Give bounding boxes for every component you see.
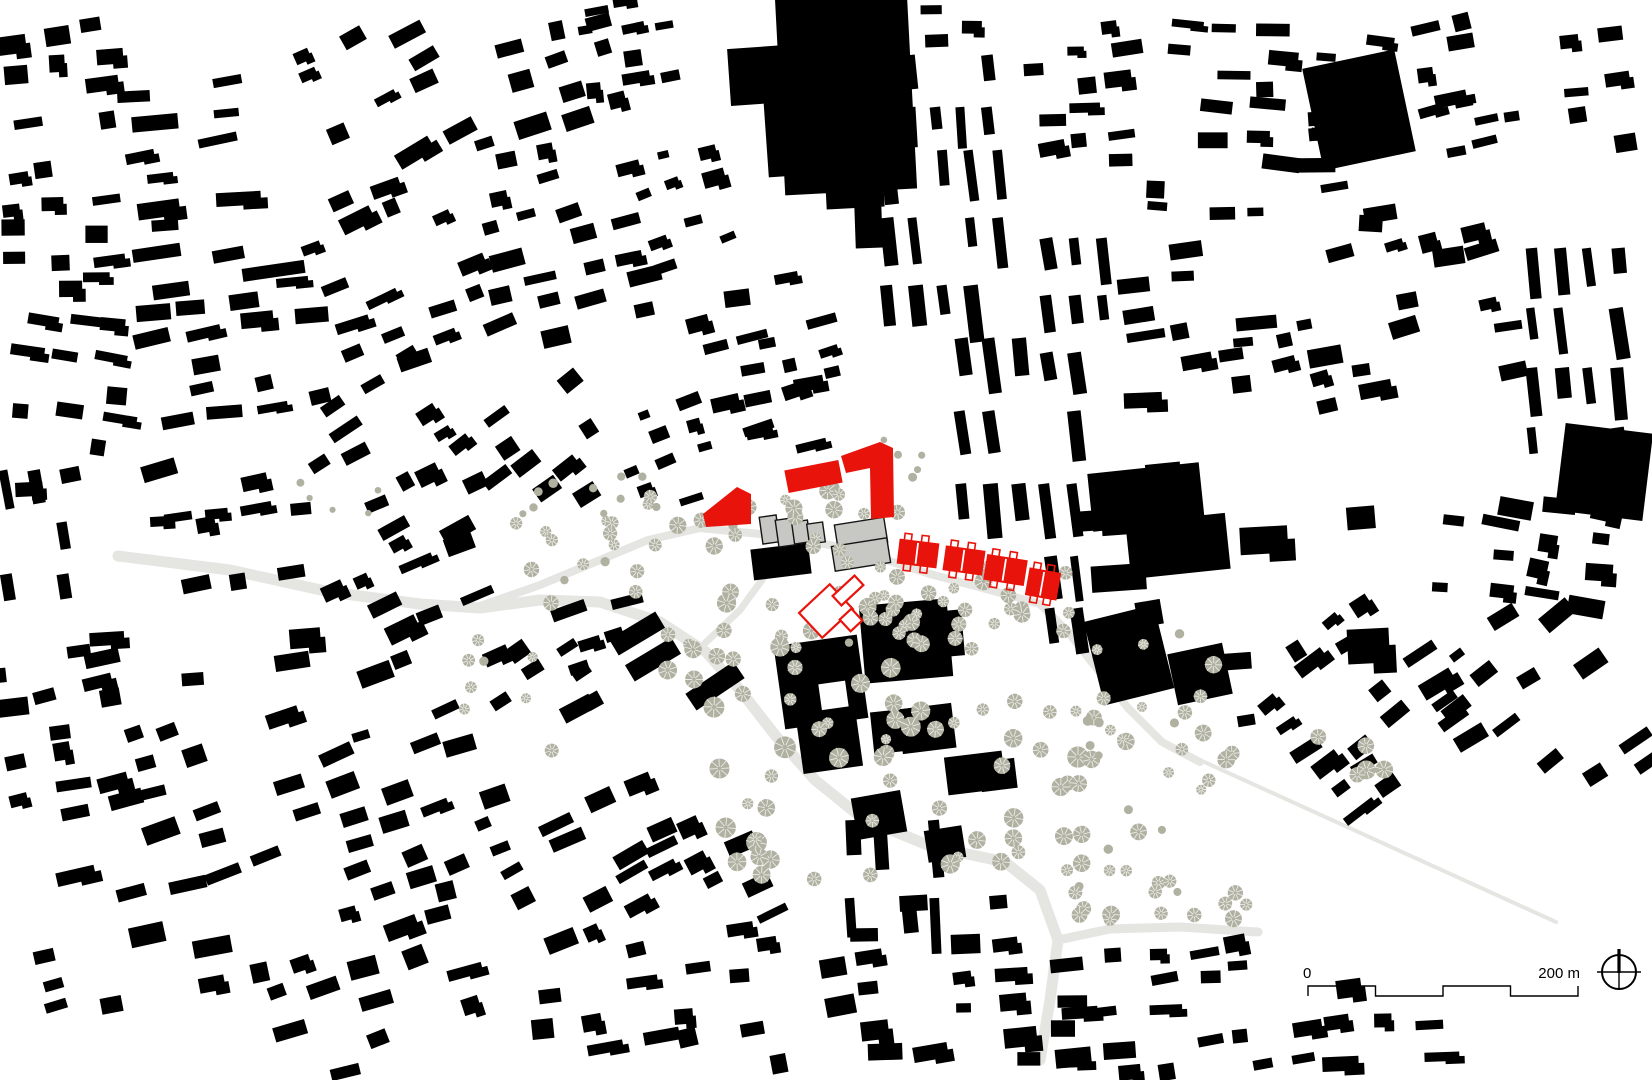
building [1504,111,1520,123]
building [1023,63,1043,76]
tree [527,652,538,662]
tree-canopy [806,539,821,554]
balcony [1043,597,1051,605]
tree-canopy [617,472,625,480]
building [1415,1020,1443,1031]
building [578,25,593,36]
tree-canopy [1105,725,1116,736]
tree-canopy [529,503,537,511]
building [479,783,511,809]
tree [652,503,660,511]
landmark-building [1125,513,1230,579]
building [1276,332,1293,349]
tree [829,748,849,768]
building [495,151,517,170]
building [406,865,437,889]
building [964,976,975,987]
tree-canopy [1225,910,1242,927]
tree [1148,885,1161,898]
building [1117,276,1150,294]
tree-canopy [510,517,522,529]
tree [757,799,775,817]
balcony [992,549,1000,557]
building [339,25,367,50]
building [431,699,460,719]
building [1555,367,1572,399]
building [489,248,526,273]
tree-canopy [609,539,620,550]
tree-canopy [365,510,371,516]
tree-canopy [858,508,870,520]
tree [685,670,703,688]
tree-canopy [658,661,677,680]
tree-canopy [600,510,607,517]
tree-canopy [1187,908,1202,923]
building-cluster [0,156,133,308]
building [229,572,247,591]
building [99,277,114,285]
tree-canopy [878,612,892,626]
building [124,725,144,743]
building [1104,948,1121,963]
building [643,1027,681,1046]
building [117,90,150,103]
building [769,1053,788,1075]
building [1126,328,1165,343]
building [277,564,306,581]
balcony [965,572,973,580]
tree-canopy [1104,844,1113,853]
building [1011,483,1029,521]
tree-canopy [1083,716,1093,726]
building [12,403,29,419]
tree-canopy [1154,907,1167,920]
building [3,252,25,264]
building [500,861,523,880]
building [1055,1046,1093,1068]
building [1291,1052,1315,1065]
tree [306,495,312,501]
building [0,697,29,718]
building [1573,648,1609,680]
tree [875,561,887,573]
tree [883,773,898,787]
tree-canopy [519,510,526,517]
building [163,521,175,530]
building [1385,1020,1395,1031]
building [1344,1063,1365,1076]
building-cluster [1400,6,1524,159]
building [1212,24,1236,33]
tree-canopy [459,704,470,715]
tree [1137,702,1147,712]
tree [750,848,767,865]
tree-canopy [1043,705,1057,719]
building [611,212,641,230]
tree [728,852,747,871]
building [483,405,509,428]
tree-canopy [600,557,609,566]
tree-canopy [1070,775,1087,792]
building [1121,77,1137,92]
building [1316,52,1336,61]
building [574,289,607,310]
tree-canopy [560,576,568,584]
tree [1120,865,1132,877]
building [1403,640,1438,668]
building [181,672,204,686]
building [442,733,477,757]
new-building-red [703,487,751,527]
building-cluster [470,180,673,360]
building [465,284,484,302]
building [110,637,130,649]
balcony [951,540,959,548]
building [13,209,24,220]
tree-canopy [1148,885,1161,898]
building [306,976,341,1000]
balcony [1009,552,1017,560]
tree-canopy [977,703,989,715]
tree [914,466,921,473]
building [272,1019,308,1043]
building [548,20,565,41]
building [381,779,414,806]
building [1147,201,1167,211]
tree-canopy [652,503,660,511]
tree [1004,808,1024,828]
tree [1070,706,1081,717]
tree [329,507,335,513]
tree [1196,785,1206,795]
tree [296,479,304,487]
tree [706,537,723,554]
building [1088,107,1105,115]
tree-canopy [1004,808,1023,827]
building [99,687,122,708]
building [181,574,212,594]
tree-canopy [735,686,751,702]
building [1443,514,1465,526]
tree-canopy [932,801,947,816]
building [1008,943,1023,955]
tree [770,637,789,656]
tree [911,608,922,619]
building [44,998,68,1014]
tree-canopy [1175,629,1184,638]
building [57,573,73,599]
building [974,27,985,37]
building-cluster [282,345,480,538]
tree-canopy [841,556,854,569]
building [1201,970,1221,983]
building [1122,306,1155,325]
building [444,853,470,876]
building [274,651,311,672]
building [1410,20,1440,36]
tree-canopy [1158,826,1166,834]
building [409,69,439,94]
building [151,219,178,232]
building [1427,74,1437,87]
building [1260,137,1273,147]
building [1474,113,1499,126]
building [356,660,395,689]
building [193,801,222,821]
tree [1358,737,1375,754]
building [1582,762,1608,787]
building [55,204,67,215]
building [1228,960,1248,971]
building [1223,652,1252,671]
building [267,983,287,1001]
tree [765,769,778,782]
building [1237,941,1251,956]
building [956,1003,971,1012]
building-cluster [920,1,986,48]
tree [1061,864,1073,876]
tree-canopy [770,637,789,656]
building [43,977,65,992]
building [676,1027,698,1049]
building [483,312,517,336]
building [1388,315,1420,340]
building [557,368,584,394]
building [106,386,127,405]
building [152,281,190,301]
building [490,840,511,856]
tree [510,517,522,529]
tree-canopy [914,466,921,473]
tree [806,539,821,554]
building [657,150,669,160]
building [326,122,350,145]
building [1582,248,1596,287]
building [697,441,712,453]
strip-cluster [0,469,72,601]
building [1526,307,1539,339]
tree-canopy [1163,767,1174,778]
building [594,38,612,57]
building [510,886,536,910]
building [1040,351,1058,381]
building [1614,132,1638,153]
building [740,1021,765,1038]
building [1611,247,1627,274]
balcony [1007,582,1015,590]
tree [609,539,620,550]
tree [748,833,761,846]
tree [606,516,619,529]
tree [365,510,371,516]
tree [753,866,771,884]
building [531,1018,555,1040]
tree [375,487,382,494]
tree-canopy [829,748,849,768]
building [1132,1071,1145,1080]
building [1200,98,1233,114]
building [824,993,857,1018]
tree [1375,761,1393,779]
tree-canopy [1073,855,1090,872]
building [1601,573,1617,588]
building [1571,40,1582,52]
building [1169,240,1204,260]
tree [728,528,742,542]
building [1471,134,1497,148]
tree-canopy [521,693,531,703]
building [513,112,551,140]
tree [735,686,751,702]
building [273,773,305,796]
building [561,106,594,132]
building [595,90,604,103]
tree-canopy [479,657,488,666]
building [1527,427,1538,454]
tree-canopy [716,817,736,837]
tree [1158,826,1166,834]
building [1351,986,1367,1002]
tree [918,452,925,459]
building [358,989,394,1012]
tree [1218,897,1232,911]
building [501,197,513,210]
tree [951,616,966,631]
tree-canopy [709,648,725,664]
tree [892,626,905,639]
building [1232,1029,1248,1044]
tree-canopy [833,543,846,556]
building [634,301,655,318]
building [584,786,616,813]
building [981,337,1001,394]
building [951,934,981,955]
tree [949,583,960,594]
tree-canopy [1130,823,1147,840]
tree [1011,845,1025,859]
tree-canopy [774,736,796,758]
balcony [921,535,929,543]
building [1097,295,1109,321]
building [982,410,1001,454]
tree [1240,898,1252,910]
building [1261,153,1300,173]
building [626,264,662,287]
balcony [1033,562,1041,570]
tree [1097,691,1111,705]
building [559,80,586,102]
strip-cluster [903,54,995,148]
building [547,149,558,163]
tree [479,657,488,666]
building [743,390,772,408]
tree-canopy [748,833,761,846]
tree [889,569,905,585]
building [181,743,208,768]
building [1070,133,1087,149]
tree [1205,656,1223,674]
building [1151,971,1179,986]
building [1487,603,1520,631]
building [578,418,599,439]
building [1525,367,1542,417]
tree-canopy [863,610,879,626]
building [1516,667,1541,689]
building [1325,243,1354,263]
building [1237,714,1256,728]
building [1619,726,1652,754]
tree-canopy [1163,875,1176,888]
tree [784,693,796,705]
building [382,197,401,217]
building [351,729,370,743]
building-cluster [145,467,312,537]
tree-canopy [765,769,778,782]
tree-canopy [886,711,904,729]
tree [1051,778,1070,797]
tree [787,660,802,675]
tree-canopy [913,635,930,652]
balcony [904,533,912,541]
tree [1310,729,1326,745]
tree-canopy [1170,718,1179,727]
tree-canopy [941,854,960,873]
building [113,55,129,68]
building [228,291,259,311]
tree [888,594,904,610]
building [1449,648,1465,663]
tree-canopy [949,583,960,594]
building [191,355,221,376]
building [33,161,53,179]
building [1017,1052,1040,1066]
building [1610,367,1628,420]
building [308,454,331,475]
tree [1063,607,1075,619]
building [138,784,167,801]
building-cluster [470,616,610,754]
building [44,25,71,47]
building [136,303,172,322]
building [1339,1020,1354,1033]
building [474,816,492,832]
tree-canopy [750,848,767,865]
tree-canopy [889,569,905,585]
building [981,106,995,135]
tree-canopy [1097,691,1111,705]
building [1537,748,1564,774]
building [1503,591,1517,603]
tree-canopy [1095,751,1103,759]
tree [589,484,597,492]
tree [529,503,537,511]
building [1451,12,1471,33]
tree [1130,823,1147,840]
building [556,638,578,657]
tree-canopy [296,479,304,487]
building [32,687,56,705]
tree-canopy [638,473,646,481]
tree [617,472,625,480]
tree-canopy [306,495,312,501]
tree [1004,729,1022,747]
building [740,362,765,377]
tree [1228,885,1243,900]
tree-canopy [757,799,775,817]
building-cluster [59,466,81,484]
building [954,410,972,455]
building [1351,363,1370,377]
